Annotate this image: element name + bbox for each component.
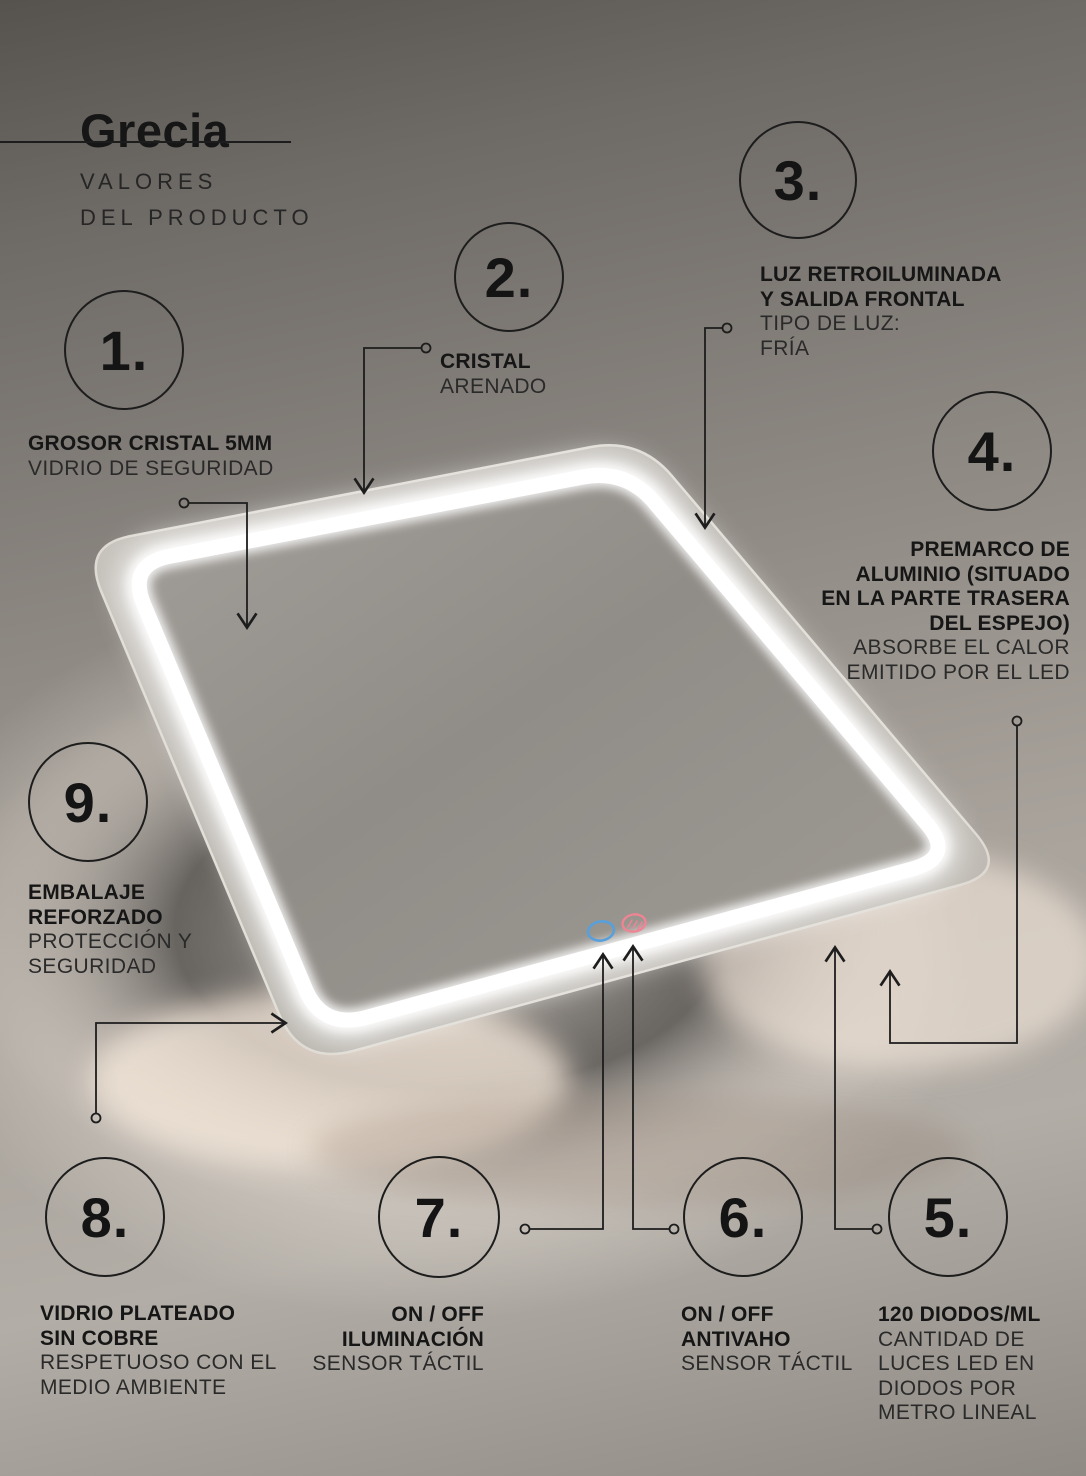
feature-4-title: PREMARCO DE ALUMINIO (SITUADO EN LA PART… bbox=[821, 538, 1070, 636]
feature-9-title: EMBALAJE REFORZADO bbox=[28, 881, 192, 930]
feature-6-desc: SENSOR TÁCTIL bbox=[681, 1352, 853, 1377]
feature-1-desc: VIDRIO DE SEGURIDAD bbox=[28, 457, 274, 482]
feature-9-label: EMBALAJE REFORZADO PROTECCIÓN Y SEGURIDA… bbox=[28, 881, 192, 979]
feature-7-label: ON / OFF ILUMINACIÓN SENSOR TÁCTIL bbox=[312, 1303, 484, 1377]
feature-9-number: 9. bbox=[64, 770, 113, 835]
feature-7-number-circle: 7. bbox=[378, 1156, 500, 1278]
feature-7-desc: SENSOR TÁCTIL bbox=[312, 1352, 484, 1377]
feature-1-number-circle: 1. bbox=[64, 290, 184, 410]
feature-8-number-circle: 8. bbox=[45, 1157, 165, 1277]
feature-4-number-circle: 4. bbox=[932, 391, 1052, 511]
callout-6-anchor-dot bbox=[670, 1225, 679, 1234]
feature-5-number: 5. bbox=[924, 1185, 973, 1250]
feature-3-number: 3. bbox=[774, 148, 823, 213]
feature-8-title: VIDRIO PLATEADO SIN COBRE bbox=[40, 1302, 277, 1351]
feature-6-label: ON / OFF ANTIVAHO SENSOR TÁCTIL bbox=[681, 1303, 853, 1377]
feature-9-number-circle: 9. bbox=[28, 742, 148, 862]
feature-4-desc: ABSORBE EL CALOR EMITIDO POR EL LED bbox=[821, 636, 1070, 685]
feature-3-label: LUZ RETROILUMINADA Y SALIDA FRONTAL TIPO… bbox=[760, 263, 1002, 361]
feature-6-number-circle: 6. bbox=[683, 1157, 803, 1277]
feature-9-desc: PROTECCIÓN Y SEGURIDAD bbox=[28, 930, 192, 979]
feature-4-number: 4. bbox=[968, 419, 1017, 484]
feature-1-number: 1. bbox=[100, 318, 149, 383]
page-title: Grecia bbox=[80, 103, 229, 158]
feature-2-title: CRISTAL bbox=[440, 350, 547, 375]
callout-7-anchor-dot bbox=[521, 1225, 530, 1234]
callout-4-anchor-dot bbox=[1013, 717, 1022, 726]
feature-1-title: GROSOR CRISTAL 5MM bbox=[28, 432, 274, 457]
feature-3-number-circle: 3. bbox=[739, 121, 857, 239]
callout-5-anchor-dot bbox=[873, 1225, 882, 1234]
feature-1-label: GROSOR CRISTAL 5MM VIDRIO DE SEGURIDAD bbox=[28, 432, 274, 481]
callout-1-anchor-dot bbox=[180, 499, 189, 508]
feature-7-title: ON / OFF ILUMINACIÓN bbox=[312, 1303, 484, 1352]
feature-8-desc: RESPETUOSO CON EL MEDIO AMBIENTE bbox=[40, 1351, 277, 1400]
feature-6-number: 6. bbox=[719, 1185, 768, 1250]
feature-2-desc: ARENADO bbox=[440, 375, 547, 400]
feature-2-number-circle: 2. bbox=[454, 222, 564, 332]
callout-3-line bbox=[705, 328, 722, 526]
feature-6-title: ON / OFF ANTIVAHO bbox=[681, 1303, 853, 1352]
page-subtitle: VALORES DEL PRODUCTO bbox=[80, 164, 314, 236]
infographic-canvas: Grecia VALORES DEL PRODUCTO 1. 2. 3. 4. … bbox=[0, 0, 1086, 1476]
feature-5-number-circle: 5. bbox=[888, 1157, 1008, 1277]
title-divider bbox=[0, 141, 291, 143]
feature-5-title: 120 DIODOS/ML bbox=[878, 1303, 1040, 1328]
feature-3-title: LUZ RETROILUMINADA Y SALIDA FRONTAL bbox=[760, 263, 1002, 312]
callout-2-line bbox=[364, 348, 421, 491]
feature-8-label: VIDRIO PLATEADO SIN COBRE RESPETUOSO CON… bbox=[40, 1302, 277, 1400]
feature-7-number: 7. bbox=[415, 1185, 464, 1250]
feature-4-label: PREMARCO DE ALUMINIO (SITUADO EN LA PART… bbox=[821, 538, 1070, 685]
feature-2-number: 2. bbox=[485, 245, 534, 310]
callout-3-anchor-dot bbox=[723, 324, 732, 333]
feature-8-number: 8. bbox=[81, 1185, 130, 1250]
feature-2-label: CRISTAL ARENADO bbox=[440, 350, 547, 399]
feature-5-label: 120 DIODOS/ML CANTIDAD DE LUCES LED EN D… bbox=[878, 1303, 1040, 1426]
feature-5-desc: CANTIDAD DE LUCES LED EN DIODOS POR METR… bbox=[878, 1328, 1040, 1426]
feature-3-desc: TIPO DE LUZ: FRÍA bbox=[760, 312, 1002, 361]
callout-2-anchor-dot bbox=[422, 344, 431, 353]
